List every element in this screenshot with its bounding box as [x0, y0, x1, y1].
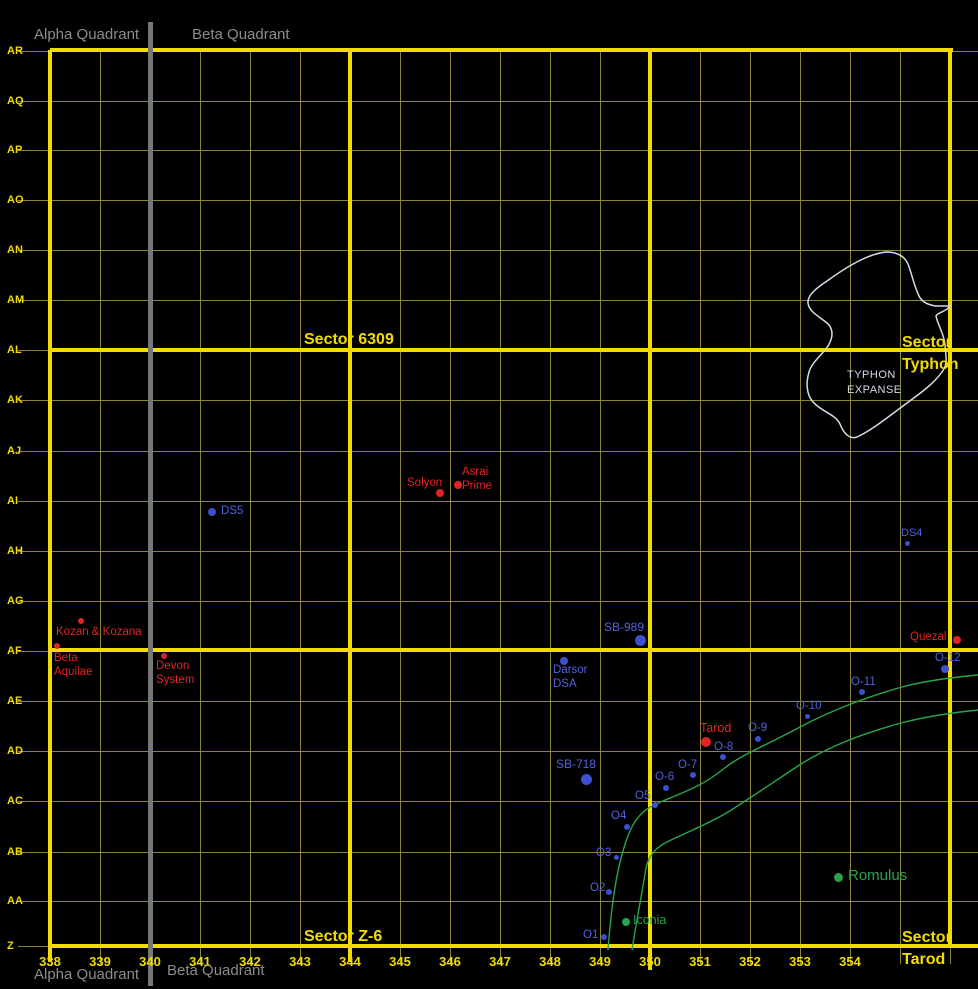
map-point-label-sb-718: SB-718 [556, 757, 596, 771]
map-point-dot-romulus [834, 873, 843, 882]
map-point-label-o1: O1 [583, 929, 598, 943]
map-point-label-asrai-prime: Asrai Prime [462, 466, 492, 493]
map-point-dot-o5 [652, 802, 658, 808]
map-point-label-sb-989: SB-989 [604, 620, 644, 634]
map-point-dot-tarod [701, 737, 711, 747]
map-point-label-o4: O4 [611, 810, 626, 824]
map-point-dot-o-10 [805, 714, 810, 719]
map-point-label-o-8: O-8 [714, 741, 733, 755]
map-point-label-o-9: O-9 [748, 722, 767, 736]
map-point-dot-quezal [953, 636, 961, 644]
map-point-label-ds4: DS4 [901, 527, 922, 540]
map-point-label-darsor-dsa: Darsor DSA [553, 664, 588, 691]
map-point-dot-o-7 [690, 772, 696, 778]
map-point-dot-o-8 [720, 754, 726, 760]
map-point-label-o2: O2 [590, 882, 605, 896]
quadrant-label-bottom-alpha: Alpha Quadrant [34, 966, 139, 983]
map-point-dot-o-6 [663, 785, 669, 791]
map-point-label-o-6: O-6 [655, 771, 674, 785]
map-point-dot-o1 [601, 934, 607, 940]
map-point-dot-o4 [624, 824, 630, 830]
quadrant-label-top-beta: Beta Quadrant [192, 26, 290, 43]
map-shapes [0, 0, 978, 989]
map-point-label-o-12: O-12 [935, 652, 961, 666]
map-point-label-quezal: Quezal [910, 631, 946, 645]
map-point-dot-o2 [606, 889, 612, 895]
sector-name-sector-6309: Sector 6309 [304, 329, 394, 351]
map-point-label-iconia: Iconia [633, 913, 666, 928]
map-point-label-o-10: O-10 [796, 700, 822, 714]
map-point-dot-iconia [622, 918, 630, 926]
map-point-label-o-7: O-7 [678, 759, 697, 773]
neutral-zone-curve [608, 675, 978, 950]
map-point-dot-sb-989 [635, 635, 646, 646]
map-point-label-o3: O3 [596, 847, 611, 861]
star-map: ARAQAPAOANAMALAKAJAIAHAGAFAEADACABAAZ338… [0, 0, 978, 989]
map-point-dot-asrai-prime [454, 481, 462, 489]
map-point-label-beta-aquilae: Beta Aquilae [54, 652, 92, 679]
map-point-label-kozan-kozana: Kozan & Kozana [56, 626, 142, 640]
map-point-dot-beta-aquilae [54, 643, 60, 649]
map-point-label-o-11: O-11 [851, 676, 876, 690]
map-point-dot-o-12 [941, 665, 949, 673]
quadrant-label-top-alpha: Alpha Quadrant [34, 26, 139, 43]
map-point-dot-o-11 [859, 689, 865, 695]
map-point-label-tarod: Tarod [700, 721, 731, 736]
map-point-label-o5: O5 [635, 790, 650, 804]
sector-name-sector-z6: Sector Z-6 [304, 926, 382, 948]
map-point-dot-o-9 [755, 736, 761, 742]
map-point-dot-ds4 [905, 541, 910, 546]
map-point-dot-sb-718 [581, 774, 592, 785]
sector-name-sector-tarod: Sector Tarod [902, 927, 952, 971]
map-point-label-solyon: Solyon [407, 477, 442, 491]
map-point-label-romulus: Romulus [848, 867, 907, 884]
map-point-dot-kozan-kozana [78, 618, 84, 624]
map-point-dot-o3 [614, 855, 619, 860]
typhon-expanse-label: TYPHON EXPANSE [847, 368, 902, 398]
map-point-label-devon-system: Devon System [156, 660, 194, 687]
map-point-dot-ds5 [208, 508, 216, 516]
map-point-dot-devon-system [161, 653, 167, 659]
sector-name-sector-typhon: Sector Typhon [902, 332, 959, 376]
neutral-zone-lines [608, 675, 978, 950]
quadrant-label-bottom-beta: Beta Quadrant [167, 962, 265, 979]
map-point-label-ds5: DS5 [221, 505, 243, 519]
neutral-zone-curve [632, 710, 978, 950]
